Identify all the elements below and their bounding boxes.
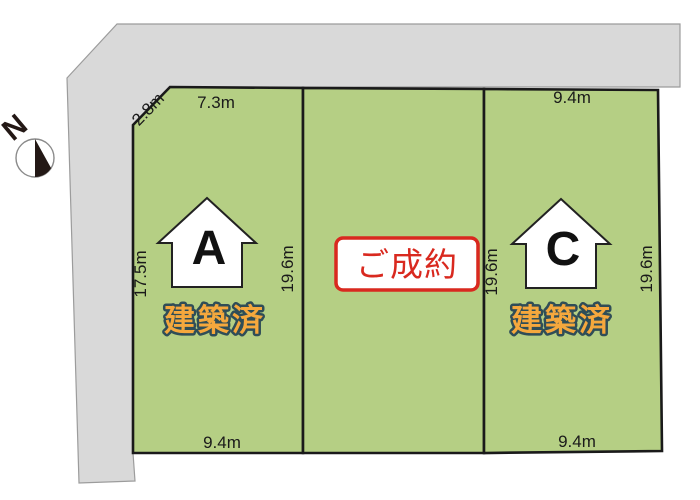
- plot-a-dim-bottom: 9.4m: [203, 433, 241, 452]
- plot-c-dim-right: 19.6m: [637, 245, 656, 292]
- plot-c-status-label: 建築済: [511, 303, 613, 338]
- plot-c-letter: C: [546, 223, 581, 276]
- plot-c-dim-top: 9.4m: [553, 88, 591, 107]
- plot-c-dim-left: 19.6m: [482, 248, 501, 295]
- plot-a-dim-right: 19.6m: [278, 245, 297, 292]
- plot-a-dim-top: 7.3m: [197, 93, 235, 112]
- plot-c-dim-bottom: 9.4m: [558, 432, 596, 451]
- plot-b-status-label: ご成約: [356, 246, 458, 283]
- lot-map: N 2.8m 7.3m 17.5m 19.6m 9.4m 9.4m 19.6m …: [0, 0, 700, 500]
- plot-b-sold-badge: ご成約: [336, 238, 478, 290]
- lot-map-page: N 2.8m 7.3m 17.5m 19.6m 9.4m 9.4m 19.6m …: [0, 0, 700, 500]
- compass: N: [0, 108, 54, 177]
- plot-a-dim-left: 17.5m: [131, 250, 150, 297]
- plot-a-status-label: 建築済: [164, 303, 266, 338]
- plot-a-letter: A: [192, 222, 227, 275]
